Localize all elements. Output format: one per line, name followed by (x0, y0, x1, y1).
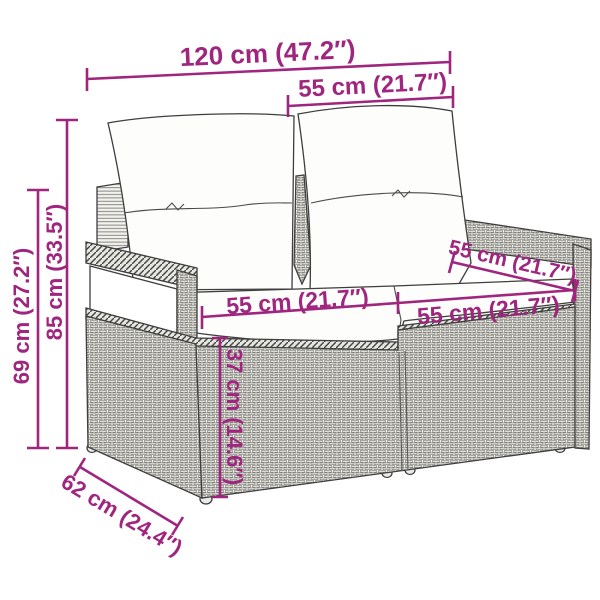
dimension-overall-height: 85 cm (33.5″) (42, 120, 78, 448)
base-side-panel (86, 316, 202, 498)
armrest-left-post (177, 270, 197, 344)
back-cushion-right (298, 106, 471, 291)
dimension-diagram: 120 cm (47.2″) 55 cm (21.7″) 85 cm (33.5… (0, 0, 600, 600)
dimension-label: 37 cm (14.6″) (222, 349, 247, 486)
diagram-canvas: 120 cm (47.2″) 55 cm (21.7″) 85 cm (33.5… (0, 0, 600, 600)
dimension-label: 69 cm (27.2″) (9, 248, 34, 385)
dimension-label: 85 cm (33.5″) (42, 204, 67, 341)
